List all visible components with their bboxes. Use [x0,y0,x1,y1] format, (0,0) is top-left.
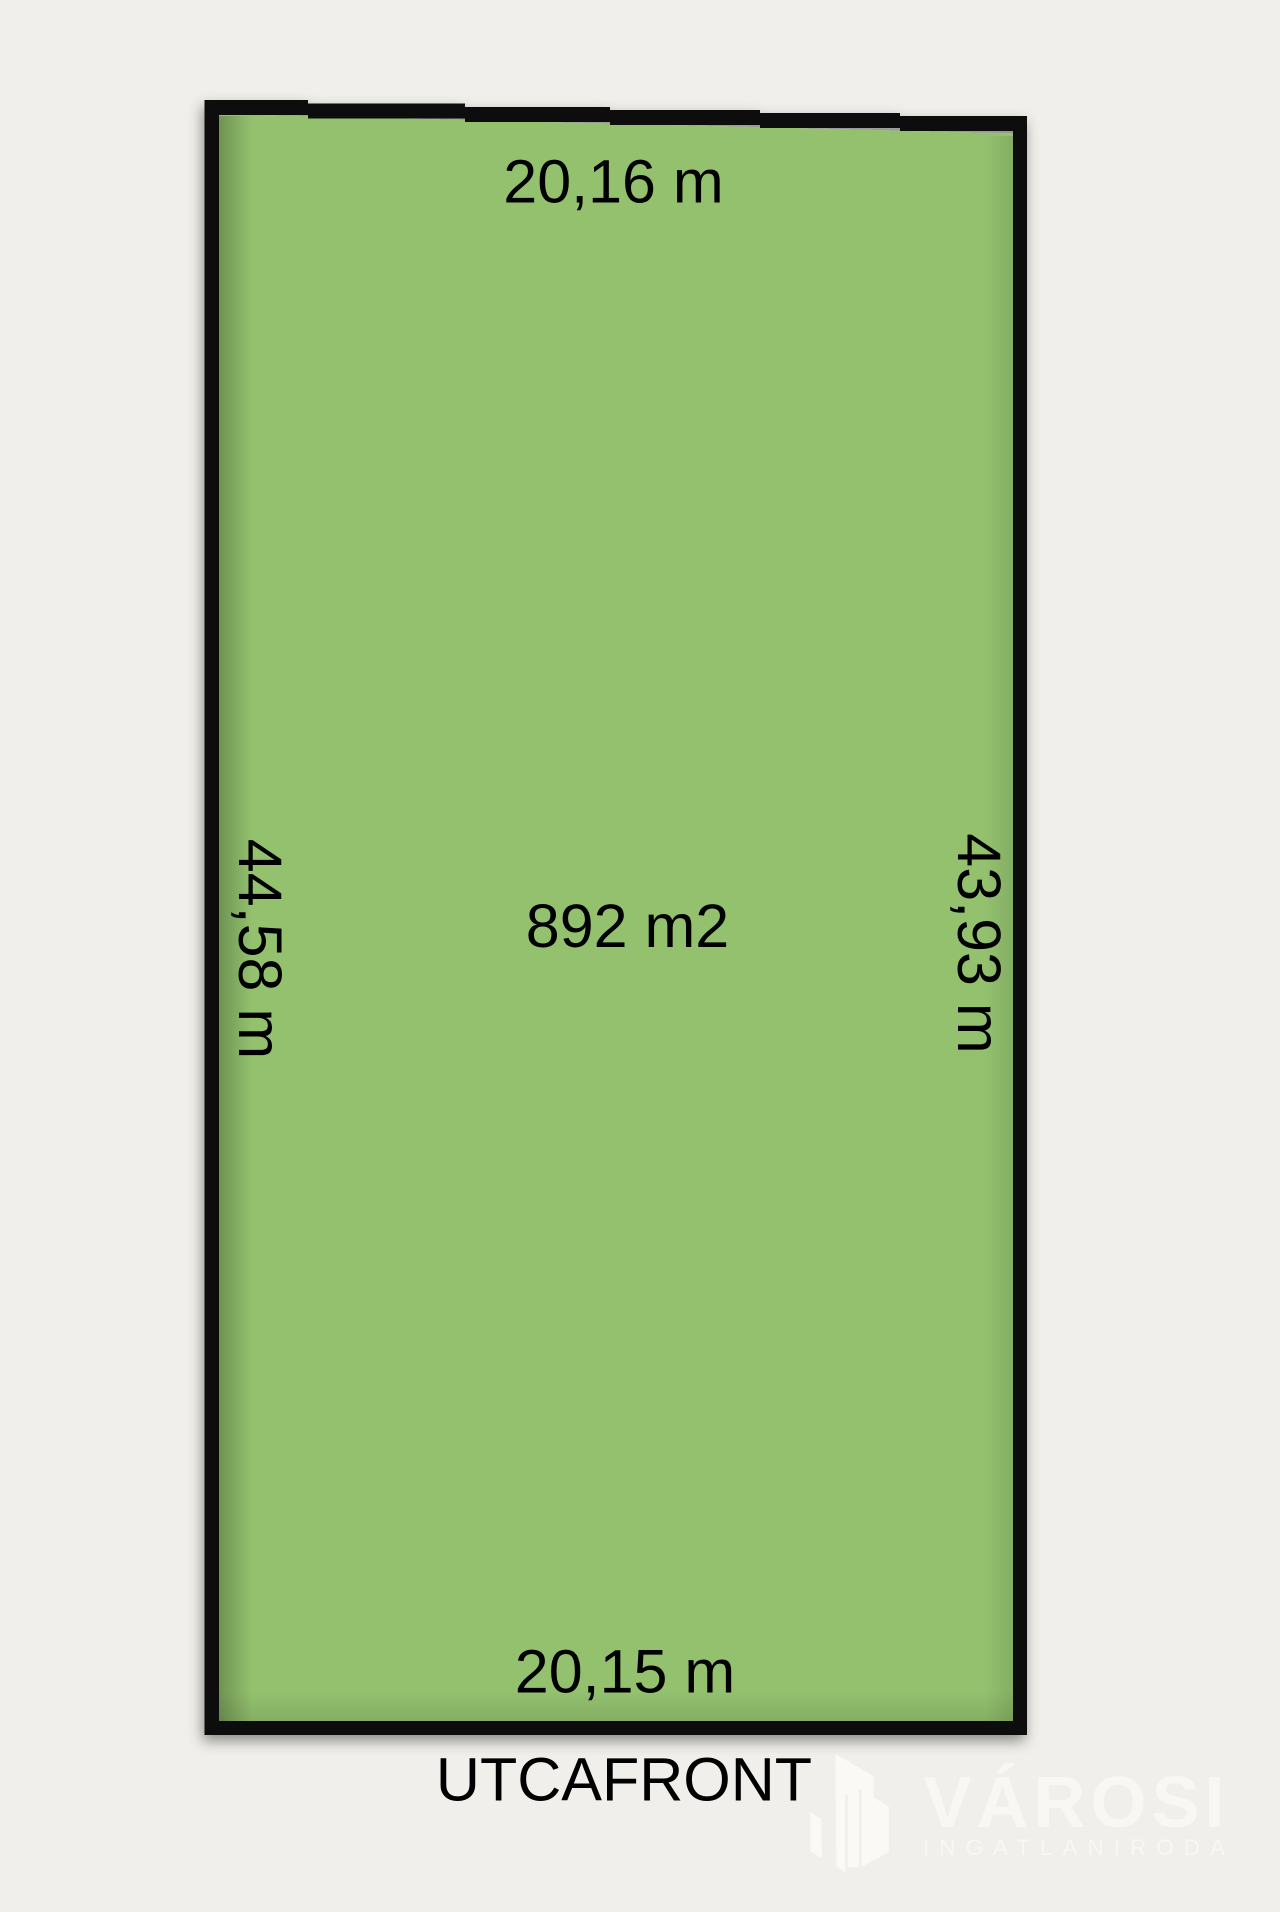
svg-text:43,93 m: 43,93 m [945,833,1013,1053]
svg-text:INGATLANIRODA: INGATLANIRODA [923,1835,1235,1860]
svg-text:VÁROSI: VÁROSI [923,1763,1229,1843]
svg-text:20,15 m: 20,15 m [515,1638,735,1706]
svg-text:UTCAFRONT: UTCAFRONT [436,1746,812,1814]
svg-text:892 m2: 892 m2 [526,892,729,960]
svg-text:20,16 m: 20,16 m [503,148,723,216]
svg-text:44,58 m: 44,58 m [226,839,294,1059]
